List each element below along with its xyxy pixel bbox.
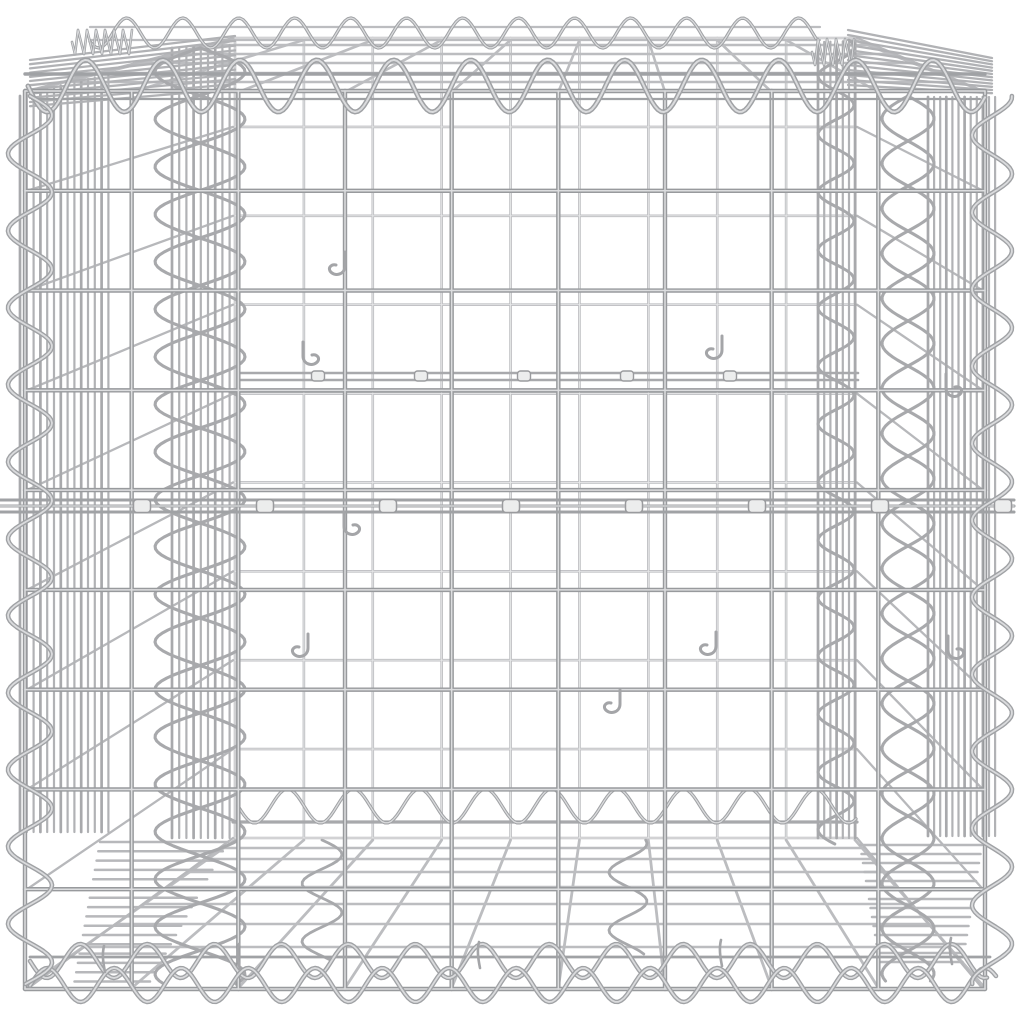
product-photo bbox=[0, 0, 1024, 1024]
mid-height-brace-wire bbox=[0, 500, 1014, 513]
gabion-basket-image bbox=[0, 0, 1024, 1024]
